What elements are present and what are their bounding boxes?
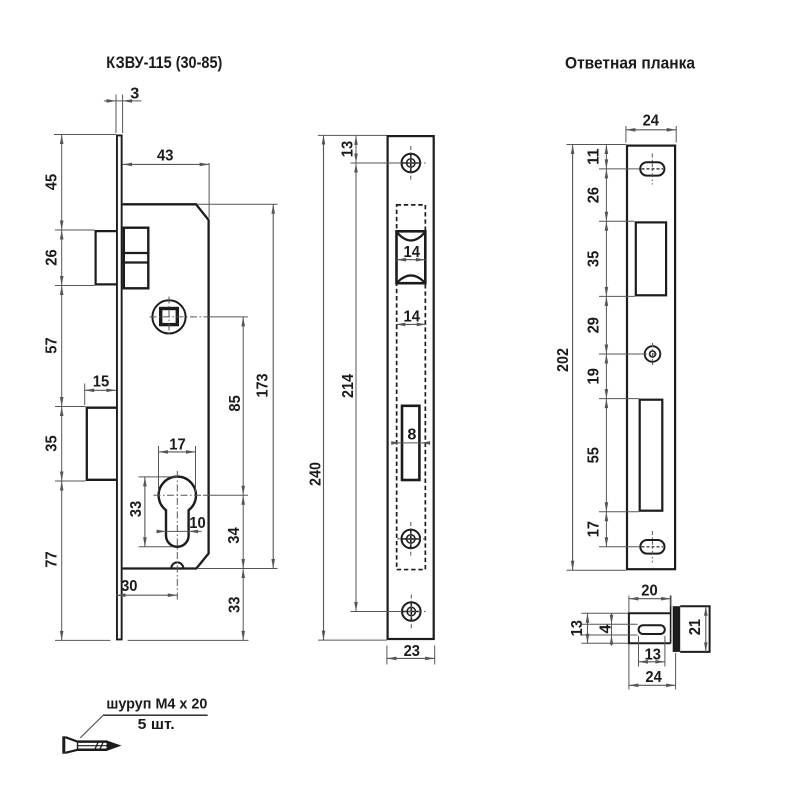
svg-text:8: 8 (407, 427, 416, 444)
svg-text:17: 17 (169, 436, 185, 453)
svg-text:17: 17 (585, 521, 602, 537)
svg-text:14: 14 (404, 244, 420, 261)
svg-text:23: 23 (404, 643, 420, 660)
svg-text:202: 202 (555, 348, 572, 372)
svg-text:24: 24 (643, 112, 659, 129)
svg-text:173: 173 (254, 373, 271, 397)
svg-text:77: 77 (43, 551, 60, 567)
svg-text:214: 214 (340, 374, 357, 398)
svg-text:19: 19 (585, 368, 602, 384)
svg-text:21: 21 (687, 619, 704, 635)
svg-text:20: 20 (641, 582, 657, 599)
svg-text:10: 10 (189, 515, 205, 532)
svg-text:13: 13 (569, 620, 586, 636)
svg-text:35: 35 (585, 251, 602, 267)
svg-text:29: 29 (585, 317, 602, 333)
svg-text:Ответная планка: Ответная планка (565, 55, 696, 73)
svg-text:КЗВУ-115 (30-85): КЗВУ-115 (30-85) (106, 54, 222, 72)
svg-text:шуруп M4 x 20: шуруп M4 x 20 (106, 696, 207, 713)
svg-text:11: 11 (585, 148, 602, 164)
svg-text:33: 33 (226, 597, 243, 613)
svg-text:26: 26 (43, 249, 60, 265)
svg-text:30: 30 (121, 578, 137, 595)
svg-text:4: 4 (597, 624, 614, 633)
svg-text:34: 34 (226, 527, 243, 543)
svg-text:57: 57 (43, 337, 60, 353)
svg-text:15: 15 (93, 373, 109, 390)
svg-text:55: 55 (585, 447, 602, 463)
svg-text:43: 43 (157, 147, 173, 164)
svg-text:33: 33 (128, 501, 145, 517)
svg-text:35: 35 (43, 435, 60, 451)
svg-text:24: 24 (645, 669, 661, 686)
svg-text:45: 45 (43, 174, 60, 190)
svg-text:3: 3 (130, 85, 139, 102)
svg-text:240: 240 (307, 462, 324, 486)
svg-text:85: 85 (227, 395, 244, 411)
svg-text:13: 13 (645, 646, 661, 663)
svg-text:26: 26 (585, 187, 602, 203)
svg-text:14: 14 (404, 308, 420, 325)
svg-text:5 шт.: 5 шт. (138, 717, 175, 733)
svg-text:13: 13 (339, 141, 356, 157)
